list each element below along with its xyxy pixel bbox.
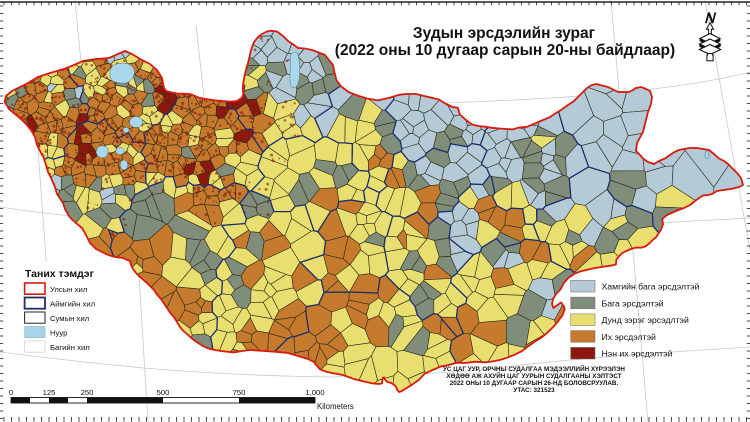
svg-text:Улсын хил: Улсын хил — [50, 285, 87, 294]
svg-text:250: 250 — [81, 388, 94, 397]
svg-text:Сумын хил: Сумын хил — [50, 314, 89, 323]
svg-text:Аймгийн хил: Аймгийн хил — [50, 299, 95, 308]
svg-text:Хамгийн бага эрсдэлтэй: Хамгийн бага эрсдэлтэй — [602, 282, 700, 292]
svg-text:Их эрсдэлтэй: Их эрсдэлтэй — [602, 332, 656, 342]
svg-text:Таних тэмдэг: Таних тэмдэг — [25, 268, 95, 280]
svg-text:Нуур: Нуур — [50, 328, 67, 337]
svg-text:Нэн их эрсдэлтэй: Нэн их эрсдэлтэй — [602, 349, 673, 359]
svg-text:Багийн хил: Багийн хил — [50, 343, 90, 352]
svg-text:0: 0 — [9, 388, 13, 397]
svg-text:2022 ОНЫ 10 ДУГААР САРЫН 26-НД: 2022 ОНЫ 10 ДУГААР САРЫН 26-НД БОЛОВСРУУ… — [450, 380, 619, 387]
svg-text:УС ЦАГ УУР, ОРЧНЫ СУДАЛГАА МЭД: УС ЦАГ УУР, ОРЧНЫ СУДАЛГАА МЭДЭЭЛЛИЙН ХҮ… — [443, 364, 625, 373]
svg-text:Бага эрсдэлтэй: Бага эрсдэлтэй — [602, 298, 664, 308]
svg-text:Зудын эрсдэлийн зураг: Зудын эрсдэлийн зураг — [413, 25, 596, 42]
svg-text:1,000: 1,000 — [305, 388, 324, 397]
svg-text:750: 750 — [233, 388, 246, 397]
svg-text:500: 500 — [157, 388, 170, 397]
svg-text:Дунд зэрэг эрсэдлтэй: Дунд зэрэг эрсэдлтэй — [602, 315, 689, 325]
svg-text:125: 125 — [43, 388, 56, 397]
svg-text:(2022 оны 10 дугаар сарын 20-н: (2022 оны 10 дугаар сарын 20-ны байдлаар… — [335, 42, 675, 59]
svg-text:Kilometers: Kilometers — [317, 402, 354, 411]
svg-text:ХӨДӨӨ АЖ АХУЙН ЦАГ УУРЫН СУДАЛ: ХӨДӨӨ АЖ АХУЙН ЦАГ УУРЫН СУДАЛГААНЫ ХЭЛТ… — [446, 371, 621, 380]
svg-text:УТАС: 321523: УТАС: 321523 — [513, 387, 555, 394]
